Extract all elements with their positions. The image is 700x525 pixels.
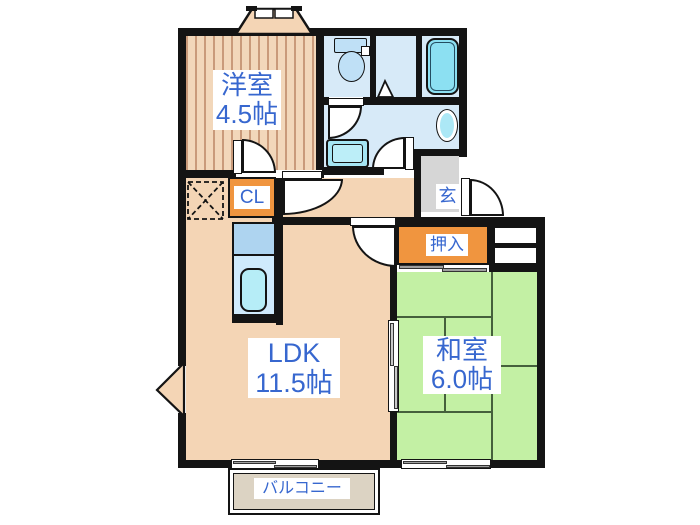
japanese-room-label: 和室 6.0帖: [423, 336, 501, 394]
ldk-door-panel: [350, 217, 396, 226]
closet-shelf: [494, 227, 537, 244]
wall-westroom-right: [316, 36, 324, 178]
oshiire-label: 押入: [426, 234, 468, 256]
wall-genkan-left: [414, 149, 421, 221]
ldk-label: LDK 11.5帖: [248, 338, 340, 398]
closet-shelf: [494, 247, 537, 264]
wall-counter-cap: [232, 315, 283, 323]
wall-toilet-utility: [370, 36, 376, 99]
westroom-door-panel: [233, 140, 242, 174]
entrance-door-panel: [461, 178, 470, 216]
toilet-door-panel: [328, 98, 364, 106]
opening-bay-window: [243, 28, 305, 35]
room-name: 和室: [436, 336, 488, 365]
washroom-door-panel: [405, 137, 414, 170]
utility-room: [376, 36, 416, 97]
genkan-step: [421, 212, 459, 217]
oshiire-sliding-door: [397, 265, 489, 272]
kitchen-counter: [232, 222, 276, 256]
opening-corner-window: [178, 366, 186, 413]
entrance-door-arc: [470, 179, 504, 216]
washing-machine-space: [326, 139, 369, 168]
washitsu-sliding-window: [401, 459, 491, 469]
wall-utility-bath: [416, 36, 422, 99]
area-name: 玄: [439, 186, 457, 206]
washitsu-sliding-door: [388, 320, 399, 412]
floor-plan: 洋室 4.5帖 LDK 11.5帖 和室 6.0帖 押入 CL 玄 バルコニー: [0, 0, 700, 525]
cl-label: CL: [234, 186, 270, 209]
room-name: 洋室: [221, 71, 273, 100]
toilet-handle: [361, 46, 370, 56]
wall-top: [178, 28, 467, 36]
western-room-label: 洋室 4.5帖: [213, 70, 281, 130]
wall-right-upper: [459, 28, 467, 157]
area-name: バルコニー: [262, 480, 342, 498]
kitchen-sink: [240, 268, 267, 312]
toilet-bowl: [338, 51, 365, 82]
room-name: LDK: [268, 338, 321, 368]
wall-counter-right: [276, 172, 283, 325]
room-size: 4.5帖: [216, 100, 278, 129]
washbasin: [436, 109, 458, 142]
storage-name: CL: [240, 187, 264, 208]
entrance-label: 玄: [436, 184, 459, 209]
bathtub: [426, 38, 459, 95]
storage-name: 押入: [430, 235, 464, 254]
room-size: 6.0帖: [431, 365, 493, 394]
hall-door-panel: [282, 171, 322, 179]
room-size: 11.5帖: [255, 368, 333, 398]
balcony-label: バルコニー: [254, 478, 350, 499]
